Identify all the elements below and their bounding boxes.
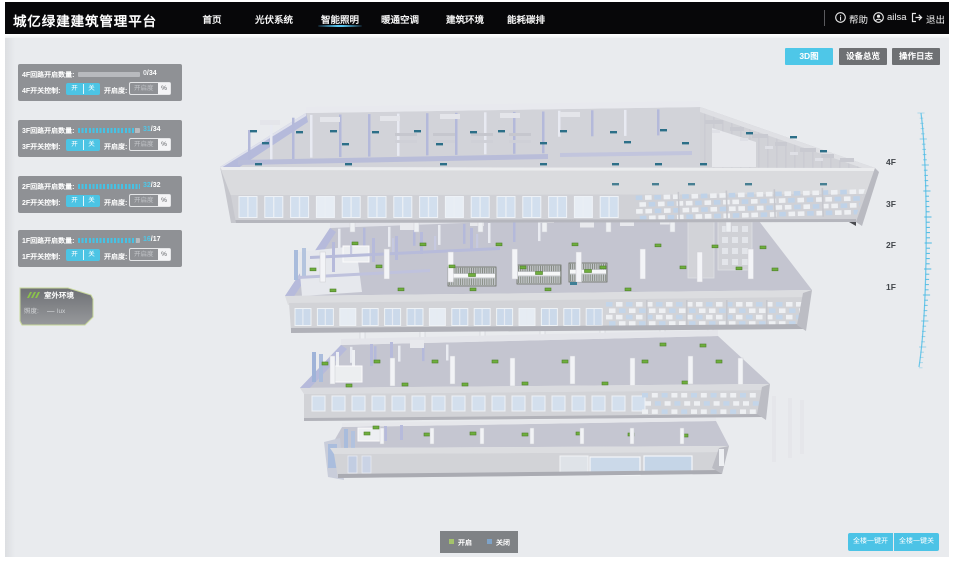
svg-text:i: i <box>839 13 841 22</box>
svg-text:—: — <box>47 306 55 315</box>
svg-text:lux: lux <box>57 308 66 315</box>
svg-text:室外环境: 室外环境 <box>44 291 74 300</box>
svg-text:照度:: 照度: <box>24 307 39 315</box>
